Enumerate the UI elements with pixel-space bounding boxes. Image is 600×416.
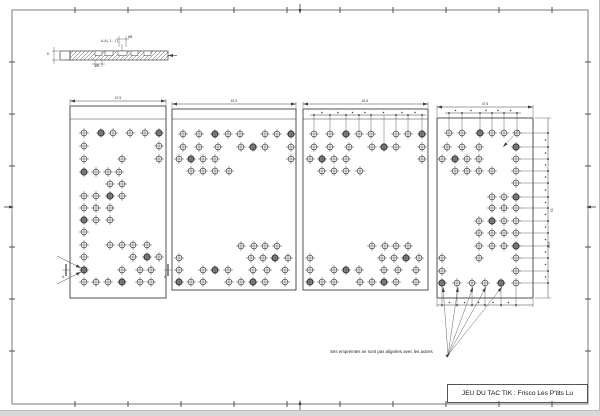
plate-4-dim-arrow: [528, 106, 533, 109]
plate-4-chain-value-mark: [455, 110, 456, 111]
note-leader-arrow: [456, 287, 460, 292]
panel1-width-dim: 47.5: [108, 96, 128, 100]
drawing-sheet: A-A ( 1 : 1 ) Ø8 Ø5 8 47.5 61.5 61.5 47.…: [0, 0, 600, 411]
plate-4-bottom-value-mark: [492, 302, 493, 303]
section-notch: [144, 51, 151, 56]
drawing-viewport: A-A ( 1 : 1 ) Ø8 Ø5 8 47.5 61.5 61.5 47.…: [0, 0, 600, 416]
center-mark-bottom-arrow: [299, 400, 302, 405]
cad-canvas: [0, 0, 600, 410]
plate-4-right-value-mark: [545, 239, 546, 240]
note-leader: [448, 287, 458, 355]
plate-3-outline: [303, 109, 428, 290]
plate-2-outline: [172, 109, 296, 290]
plate-4-right-value-mark: [545, 152, 546, 153]
plate-4-bottom-value-mark: [478, 302, 479, 303]
plate-1-dim-arrow: [70, 100, 75, 103]
plate-4-dim-arrow: [437, 106, 442, 109]
plate-4-chain-value-mark: [470, 110, 471, 111]
section-dim-bottom: Ø5: [95, 64, 99, 68]
plate-3-chain-value-mark: [337, 112, 338, 113]
center-mark-top-arrow: [299, 9, 302, 14]
section-dim-left: 8: [47, 52, 49, 56]
section-dim-top: Ø8: [128, 35, 132, 39]
plate-3-dim-arrow: [423, 103, 428, 106]
annotation-note: Ses empreintes ne sont pas alignées avec…: [330, 349, 433, 354]
panel4-height-dim: 94: [550, 208, 554, 212]
plate-3-chain-value-mark: [352, 112, 353, 113]
plate-4-bottom-value-mark: [449, 302, 450, 303]
section-label: A-A ( 1 : 1 ): [101, 39, 118, 43]
plate-3-chain-value-mark: [383, 112, 384, 113]
plate-4-bottom-value-mark: [508, 302, 509, 303]
plate-4-right-value-mark: [545, 164, 546, 165]
plate-4-right-value-mark: [545, 176, 546, 177]
plate-1-outline: [70, 106, 166, 298]
note-leader-arrow: [498, 286, 503, 292]
plate-1-dim-arrow: [161, 100, 166, 103]
plate-3-dim-arrow: [303, 103, 308, 106]
section-notch: [105, 51, 113, 56]
plate-4-chain-value-mark: [497, 110, 498, 111]
drawing-title: JEU DU TAC TIK : Frisco Les P'tits Lu: [462, 390, 573, 397]
panel4-segment-dim: 12.5: [547, 242, 551, 248]
panel2-width-dim: 61.5: [224, 99, 244, 103]
section-cut-label-a2: A: [164, 275, 166, 279]
plate-4-bottom-value-mark: [464, 302, 465, 303]
plate-4-right-value-mark: [545, 251, 546, 252]
plate-4-right-value-mark: [545, 139, 546, 140]
note-leader: [448, 287, 502, 355]
plate-4-right-value-mark: [545, 276, 546, 277]
section-cut-label-a1: A: [62, 275, 64, 279]
plate-3-chain-value-mark: [321, 112, 322, 113]
note-leader: [448, 287, 473, 355]
note-leader: [443, 287, 448, 355]
section-tail-arrow: [168, 54, 173, 57]
panel3-width-dim: 61.5: [355, 99, 375, 103]
panel4-width-dim: 47.5: [475, 102, 495, 106]
plate-3-chain-value-mark: [401, 112, 402, 113]
section-notch: [95, 51, 102, 56]
title-block: JEU DU TAC TIK : Frisco Les P'tits Lu: [447, 384, 588, 403]
plate-4-chain-value-mark: [485, 110, 486, 111]
plate-3-chain-value-mark: [414, 112, 415, 113]
plate-3-chain-value-mark: [364, 112, 365, 113]
section-end-cap: [60, 51, 70, 60]
plate-4-right-value-mark: [545, 202, 546, 203]
section-notch: [131, 51, 138, 56]
note-leader: [448, 287, 486, 355]
plate-4-right-value-mark: [545, 214, 546, 215]
plate-4-right-value-mark: [545, 264, 546, 265]
plate-4-right-value-mark: [545, 226, 546, 227]
plate-2-dim-arrow: [172, 103, 177, 106]
plate-2-dim-arrow: [291, 103, 296, 106]
plate-4-right-value-mark: [545, 189, 546, 190]
section-notch: [118, 51, 127, 56]
plate-4-chain-value-mark: [510, 110, 511, 111]
